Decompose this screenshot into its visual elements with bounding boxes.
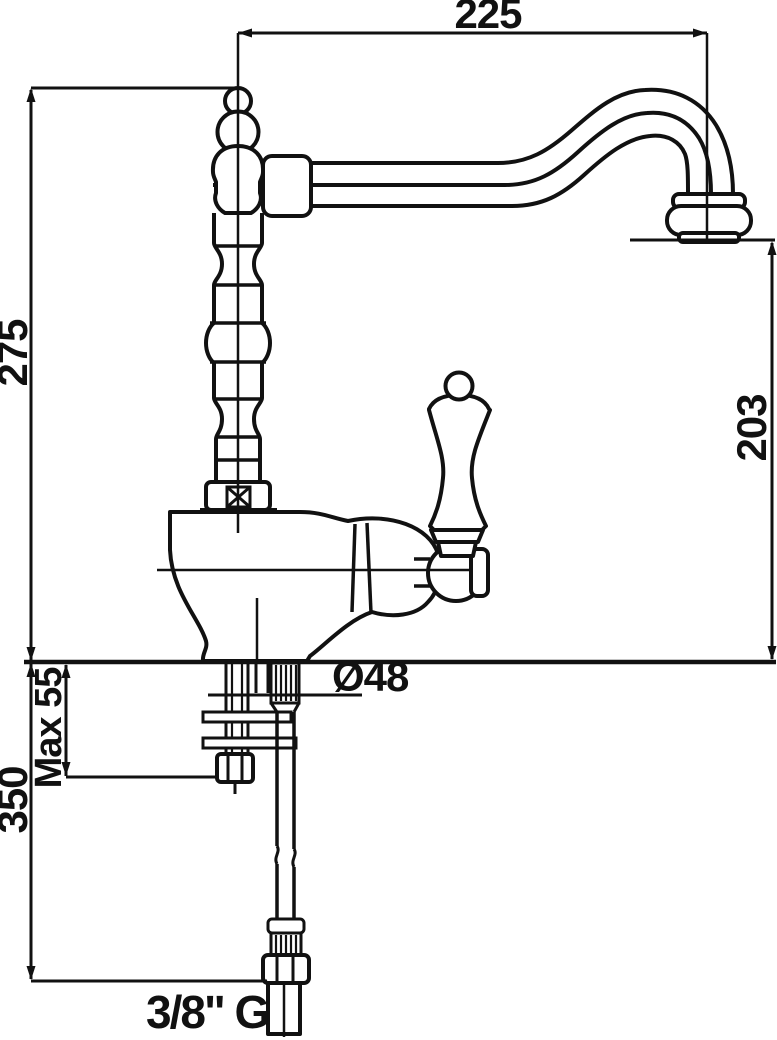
mounting-nut [217, 754, 253, 782]
faucet-technical-drawing: 225 275 350 Max 55 203 Ø48 3/8" G [0, 0, 777, 1040]
hose-break-symbol [293, 849, 295, 867]
mounting-flange [203, 738, 296, 748]
dim-203-arrow-bottom [768, 646, 777, 660]
aerator-bulge [667, 206, 751, 235]
spout-nut [263, 156, 311, 216]
handle-cap-ball [446, 373, 473, 400]
dim-label-203: 203 [728, 394, 775, 461]
dim-225-arrow-right [693, 29, 707, 38]
spout-top-contour [308, 90, 733, 194]
body-outline [170, 512, 440, 661]
body-group [170, 512, 440, 661]
dim-label-max55: Max 55 [28, 667, 70, 789]
handle-lever [429, 395, 490, 530]
swivel-finial-group [213, 88, 311, 216]
dim-203-arrow-top [768, 241, 777, 255]
dim-275-arrow-bottom [27, 647, 36, 661]
dim-label-thread: 3/8" G [146, 986, 268, 1038]
dim-350-arrow-bottom [27, 966, 36, 980]
column-left-edge [206, 213, 222, 482]
hose-ferrule [268, 919, 304, 933]
spout-bottom-contour [308, 136, 688, 206]
dim-label-d48: Ø48 [332, 653, 409, 700]
dim-225-arrow-left [238, 29, 252, 38]
drawing-canvas: 225 275 350 Max 55 203 Ø48 3/8" G [0, 0, 777, 1040]
dim-275-arrow-top [27, 88, 36, 102]
faucet-outline-group [24, 33, 776, 1037]
column-right-edge [254, 213, 270, 482]
dim-label-225: 225 [454, 0, 522, 37]
handle-stem [438, 542, 476, 556]
hose-hex-nut [263, 955, 309, 983]
dim-label-275: 275 [0, 319, 36, 387]
hose-break-symbol [276, 846, 278, 864]
